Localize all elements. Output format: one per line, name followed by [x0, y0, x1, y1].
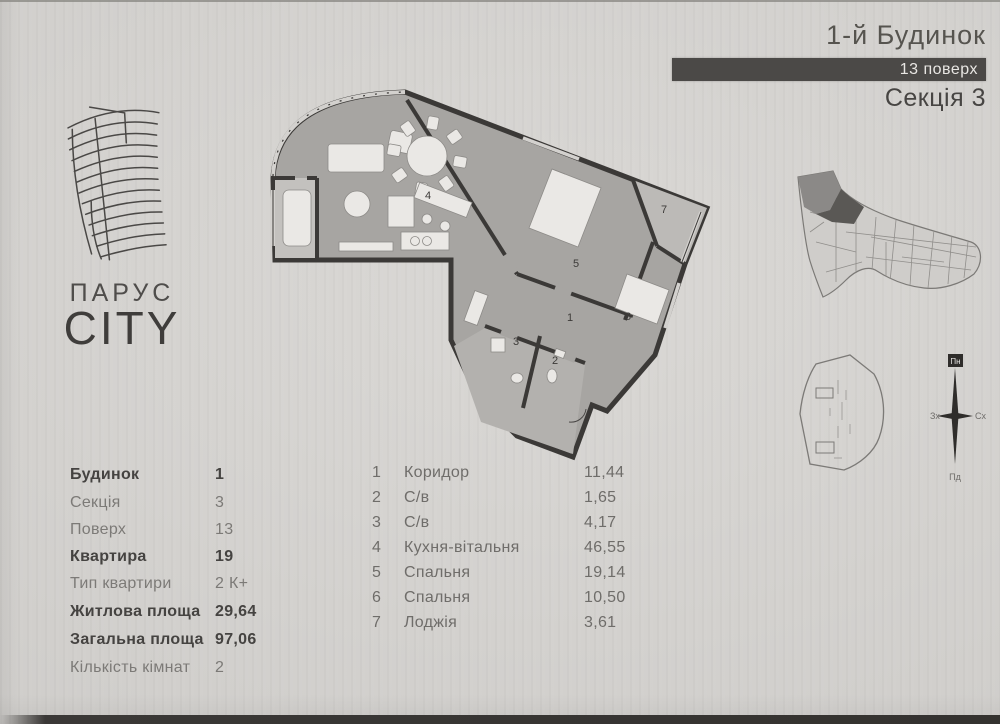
floorplan-drawing: [255, 78, 725, 498]
compass-east-label: Сх: [975, 411, 986, 421]
table-row: 1Коридор11,44: [372, 464, 642, 482]
info-row-type: Тип квартири2 К+: [70, 575, 370, 595]
room-label-1: 1: [567, 312, 573, 324]
floorplan: 1 2 3 4 5 6 7: [255, 78, 725, 498]
annex-rug: [283, 190, 311, 246]
table-row: 7Лоджія3,61: [372, 614, 642, 632]
toilet: [547, 369, 557, 383]
info-row-building: Будинок1: [70, 466, 370, 486]
compass-rose: Пн Зх Сх Пд: [928, 352, 988, 487]
tower-logo-icon: [52, 90, 192, 270]
parus-city-logo: ПАРУС CITY: [52, 90, 192, 348]
room-label-4: 4: [425, 190, 431, 202]
sofa: [328, 144, 384, 172]
room-label-5: 5: [573, 258, 579, 270]
info-row-floor: Поверх13: [70, 521, 370, 541]
info-row-section: Секція3: [70, 494, 370, 514]
table-row: 5Спальня19,14: [372, 564, 642, 582]
compass-needle-horizontal: [937, 413, 973, 420]
logo-sub: CITY: [52, 308, 192, 348]
scan-bottom-edge: [0, 715, 1000, 724]
compass-north-label: Пн: [950, 357, 960, 366]
tv-stand: [339, 242, 393, 251]
compass-west-label: Зх: [930, 411, 940, 421]
table-row: 4Кухня-вітальня46,55: [372, 539, 642, 557]
building-title: 1-й Будинок: [666, 20, 986, 51]
scanned-floorplan-page: { "header": { "building": "1-й Будинок",…: [0, 0, 1000, 724]
stool: [422, 214, 432, 224]
stool: [440, 221, 450, 231]
compass-south-label: Пд: [949, 472, 961, 482]
floor-overview-minimap: [776, 162, 986, 312]
info-row-living-area: Житлова площа29,64: [70, 603, 370, 623]
table-row: 6Спальня10,50: [372, 589, 642, 607]
sink: [511, 373, 523, 383]
table-row: 2С/в1,65: [372, 489, 642, 507]
info-row-room-count: Кількість кімнат2: [70, 659, 370, 679]
room-label-2: 2: [552, 355, 558, 367]
room-label-3: 3: [513, 336, 519, 348]
coffee-table: [344, 191, 370, 217]
info-row-total-area: Загальна площа97,06: [70, 631, 370, 651]
site-plan: [786, 350, 901, 480]
room-label-7: 7: [661, 204, 667, 216]
info-row-apartment: Квартира19: [70, 548, 370, 568]
scan-top-edge: [0, 0, 1000, 2]
table-row: 3С/в4,17: [372, 514, 642, 532]
room-label-6: 6: [625, 311, 631, 323]
rug: [388, 196, 414, 227]
washer: [491, 338, 505, 352]
